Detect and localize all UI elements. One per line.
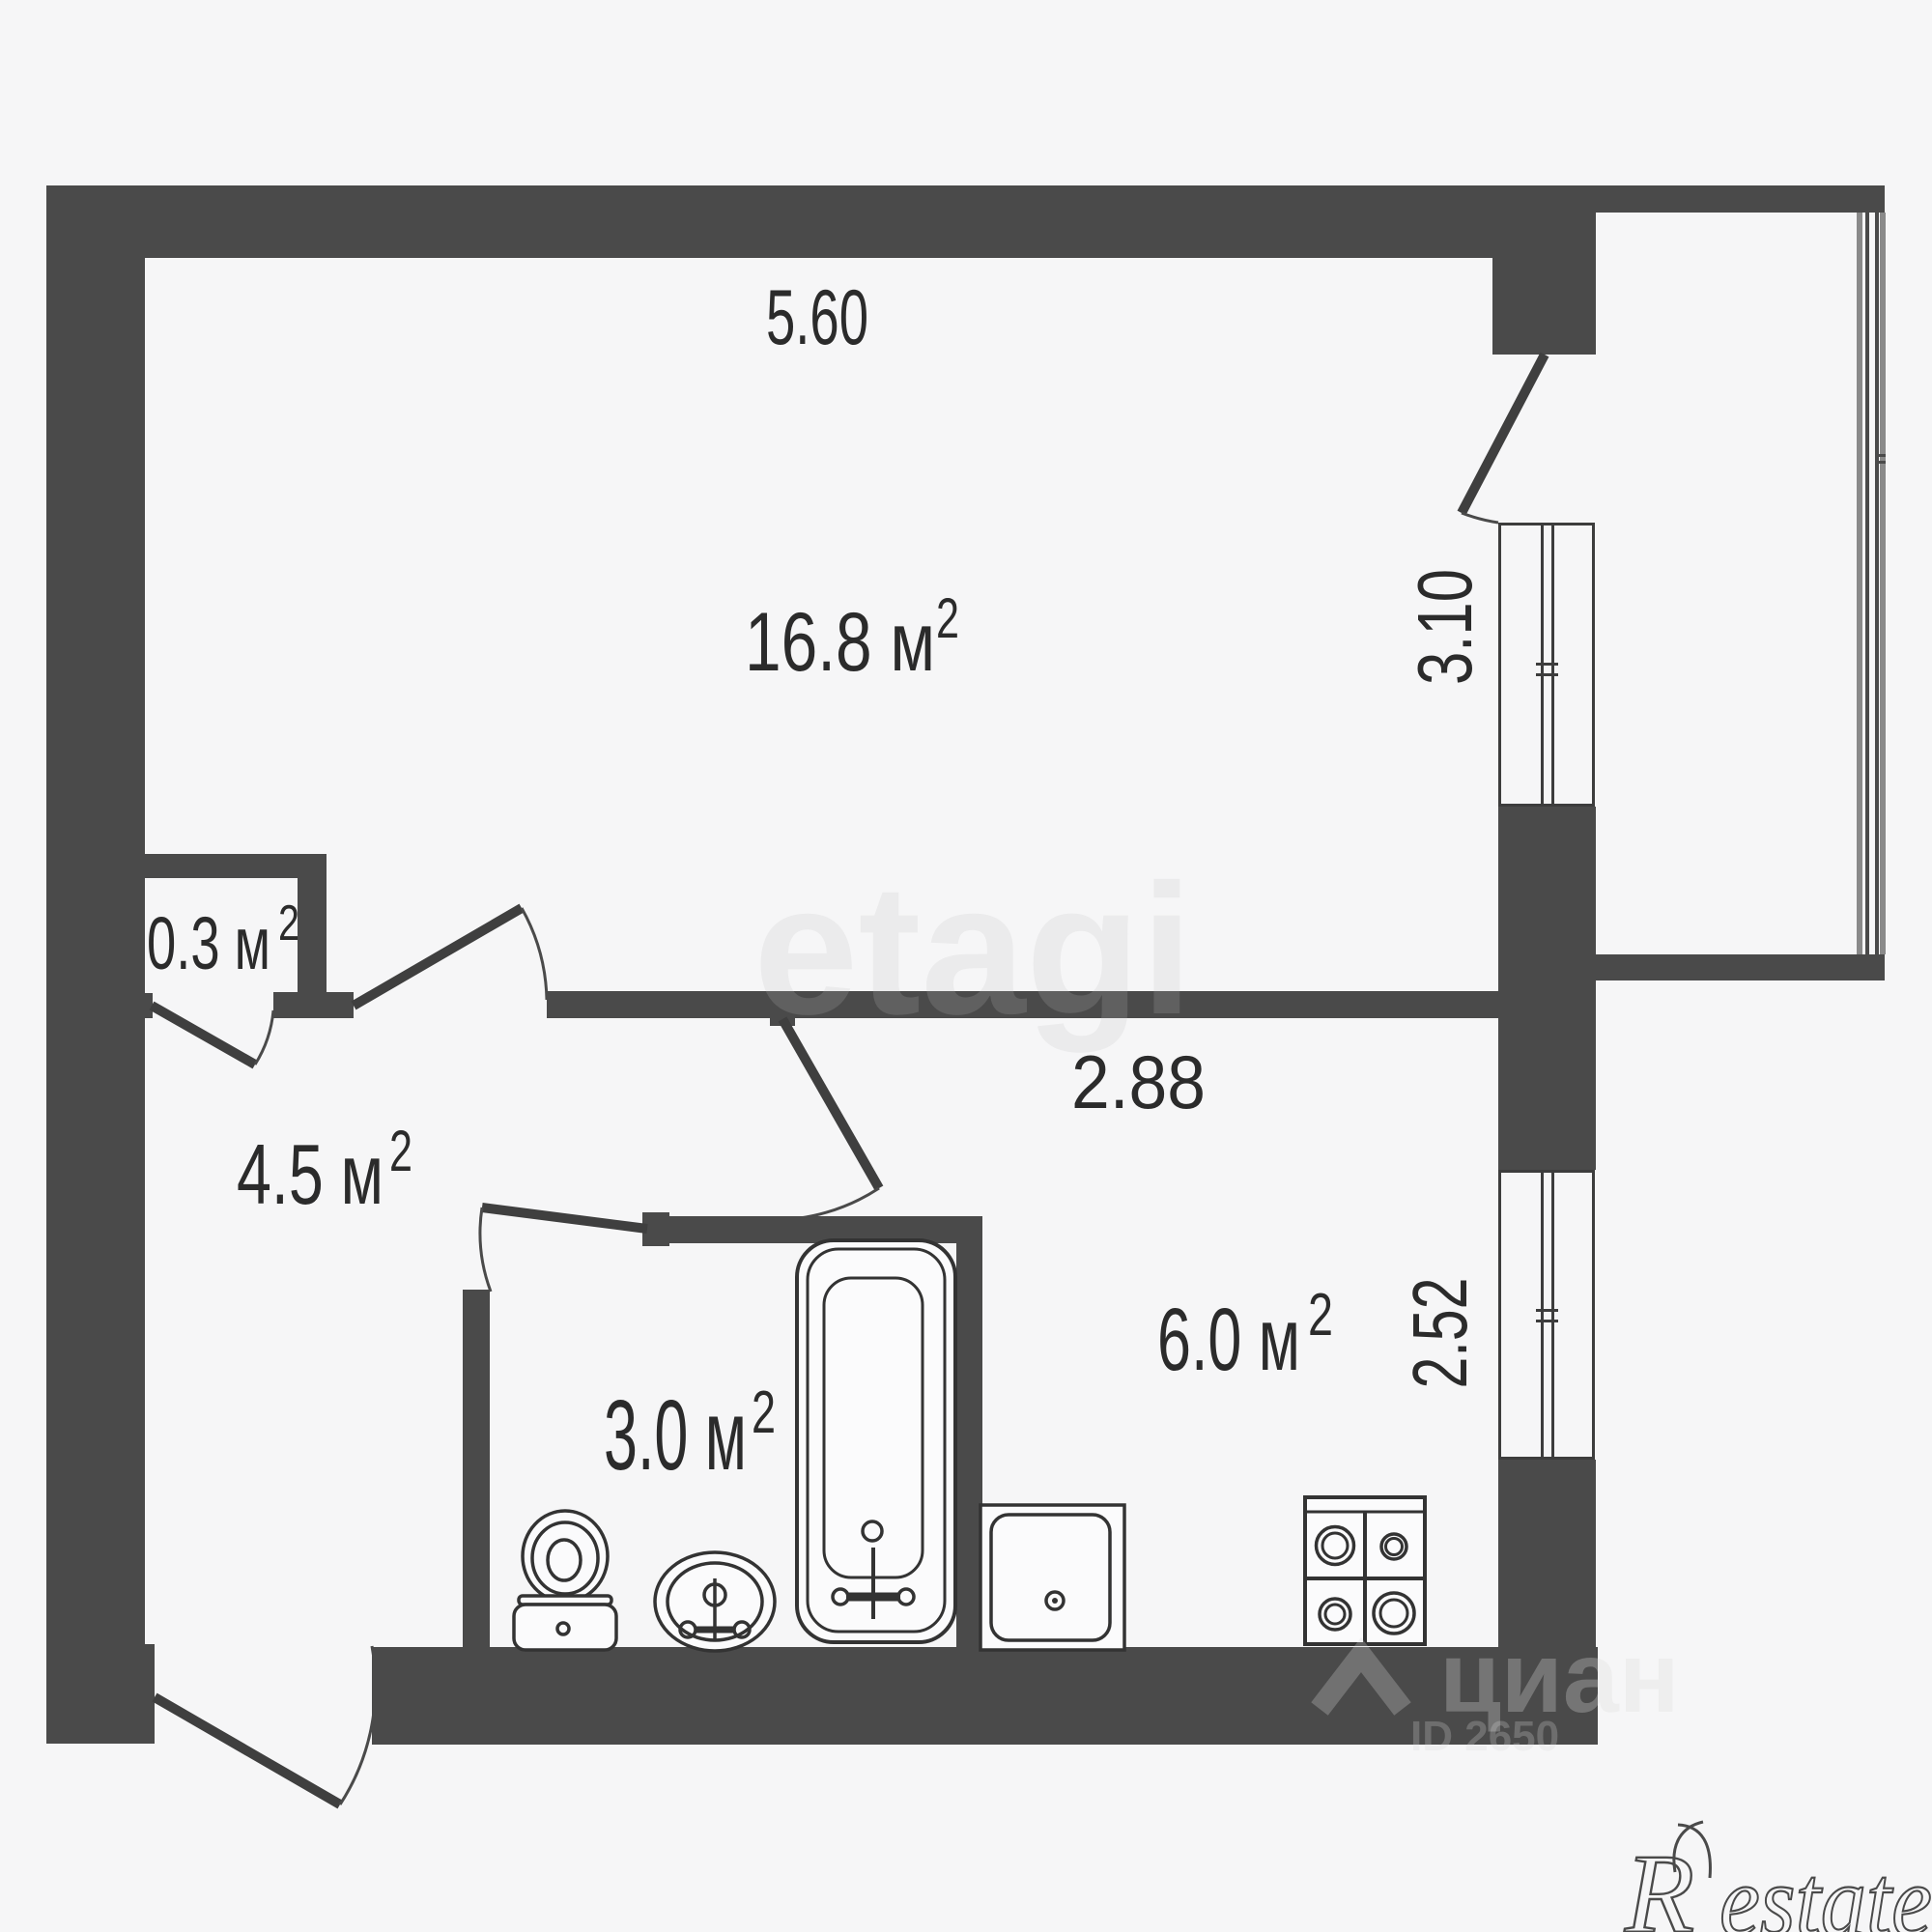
- svg-text:5.60: 5.60: [766, 274, 868, 361]
- svg-text:3.10: 3.10: [1402, 569, 1488, 685]
- svg-text:2: 2: [389, 1119, 412, 1183]
- svg-text:3.0 м: 3.0 м: [604, 1379, 747, 1491]
- svg-text:R: R: [1624, 1831, 1694, 1932]
- svg-text:2.52: 2.52: [1397, 1278, 1483, 1389]
- svg-text:ID 2650: ID 2650: [1410, 1713, 1559, 1760]
- svg-text:2: 2: [752, 1379, 776, 1446]
- svg-text:0.3 м: 0.3 м: [147, 902, 270, 985]
- svg-text:2.88: 2.88: [1071, 1039, 1206, 1124]
- svg-text:2: 2: [278, 895, 299, 952]
- svg-text:16.8 м: 16.8 м: [745, 596, 935, 689]
- svg-text:6.0 м: 6.0 м: [1157, 1291, 1300, 1389]
- svg-text:2: 2: [936, 587, 959, 650]
- svg-text:etagi: etagi: [753, 845, 1193, 1053]
- svg-text:2: 2: [1308, 1282, 1333, 1349]
- svg-text:4.5 м: 4.5 м: [237, 1126, 384, 1222]
- svg-text:estate: estate: [1719, 1844, 1932, 1932]
